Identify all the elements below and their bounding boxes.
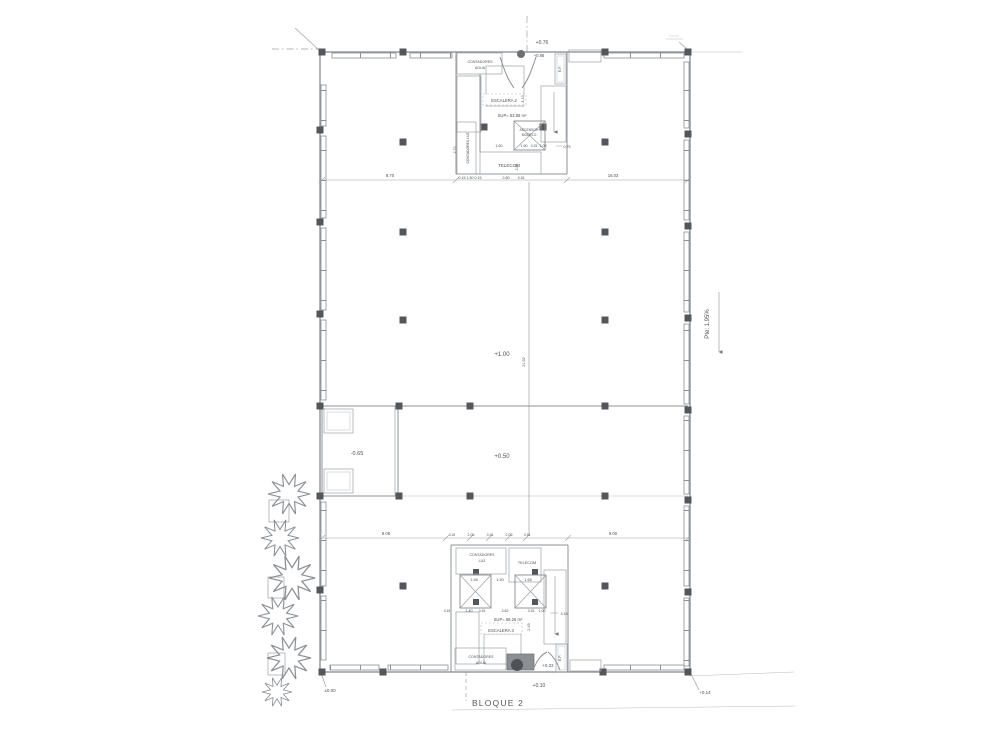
- entry-funnel-top: [500, 57, 536, 88]
- dim-015: 0.15: [531, 144, 538, 148]
- dim-343: 3.43: [521, 95, 525, 102]
- escalera3-label: ESCALERA 3: [488, 628, 514, 633]
- sup-top-label: SUP= 53.88 m²: [498, 113, 527, 118]
- level-top-entry: +0.88: [534, 53, 545, 58]
- dim-245: 2.45: [527, 623, 531, 630]
- site-reference-lines: [272, 16, 795, 710]
- contadores-luz-bottom-1: CONTADORES: [469, 553, 495, 557]
- dim-b5: 0.15: [524, 533, 531, 537]
- dim-2152: 21.52: [522, 357, 526, 367]
- dim-row2a: 0.15 1.50 0.15: [459, 176, 482, 180]
- tree: [261, 520, 299, 556]
- bottom-right-extension-line: [690, 672, 794, 676]
- tree: [267, 637, 311, 679]
- tree: [262, 678, 292, 707]
- telecom-bottom: TELECOM: [518, 561, 536, 565]
- entry-column-top: [517, 50, 525, 58]
- ascensor-2: MODELO: [522, 133, 537, 137]
- building-outline: [320, 52, 690, 672]
- floor-plan-drawing: +0.76 +0.88 E.P. CONTADORES AGUA ESCALER…: [0, 0, 1008, 736]
- dim-c6: 1.00: [539, 609, 546, 613]
- level-top: +0.76: [536, 40, 549, 46]
- dim-c5: 0.15: [528, 609, 535, 613]
- level-bottom-lobby: +0.22: [542, 663, 554, 668]
- dim-075: 0.75: [564, 145, 571, 149]
- vent-hatch-bottom: [570, 660, 601, 671]
- ep-label-top: E.P.: [558, 66, 562, 72]
- columns: [317, 49, 692, 676]
- dim-c7: 3.15: [561, 612, 568, 616]
- ascensor-1: ASCENSOR: [519, 128, 539, 132]
- dim-190: 1.90: [521, 144, 528, 148]
- escalera2-label: ESCALERA 2: [491, 98, 517, 103]
- contadores-luz-bottom-2: LUZ: [479, 559, 487, 563]
- dim-c4: 3.62: [502, 609, 509, 613]
- contadores-agua-bottom-1: CONTADORES: [468, 655, 494, 659]
- stair-flight-left-top: [457, 76, 481, 132]
- dim-b2: 2.05: [468, 533, 475, 537]
- dim-870: 8.70: [386, 173, 395, 178]
- block-title: BLOQUE 2: [472, 698, 524, 708]
- slope-label: Pte: 1.95%: [705, 309, 711, 339]
- contadores-agua-top-1: CONTADORES: [467, 60, 493, 64]
- dim-165b: 1.65: [524, 578, 531, 582]
- dim-280: 2.80: [503, 176, 510, 180]
- corner-level-leader: [691, 674, 699, 690]
- dim-c2: 1.40: [466, 609, 473, 613]
- tree: [269, 556, 315, 600]
- corner-diagonal-line: [295, 28, 319, 50]
- top-right-illegible-mark: [666, 36, 683, 39]
- interior-lines: [322, 182, 688, 536]
- dim-b1: 0.15: [449, 533, 456, 537]
- level-pit: -0.65: [351, 451, 364, 457]
- dim-100: 1.00: [540, 144, 547, 148]
- ep-label-bottom: E.P.: [558, 655, 562, 661]
- dim-160: 1.60: [496, 144, 503, 148]
- dimension-lines: [319, 177, 691, 541]
- dim-220: 2.20: [515, 164, 519, 171]
- dim-273: 2.73: [453, 147, 457, 154]
- contadores-luz-top: CONTADORES LUZ: [466, 132, 470, 163]
- contadores-agua-bottom-2: AGUA: [476, 661, 487, 665]
- dim-808: 8.08: [382, 531, 391, 536]
- scanned-floor-plan-page: +0.76 +0.88 E.P. CONTADORES AGUA ESCALER…: [0, 0, 1008, 736]
- dim-150: 1.50: [496, 578, 503, 582]
- telecom-room-bottom: [509, 548, 541, 582]
- dim-b4: 2.05: [506, 533, 513, 537]
- dim-c1: 0.15: [444, 609, 451, 613]
- dim-c3: 0.15: [479, 609, 486, 613]
- level-bottom-entry: +0.10: [533, 683, 546, 689]
- dim-900: 9.00: [609, 531, 618, 536]
- sup-bottom-label: SUP= 58.26 m²: [494, 617, 523, 622]
- level-ground: ±0.00: [324, 688, 336, 693]
- trees: [258, 474, 315, 706]
- water-meters-room-bottom: [455, 648, 506, 670]
- dim-row2c: 0.15: [518, 176, 525, 180]
- level-upper-hall: +1.00: [494, 352, 510, 358]
- manhole-bottom: [511, 659, 523, 671]
- dim-1603: 16.03: [608, 173, 619, 178]
- dim-b3: 0.15: [487, 533, 494, 537]
- level-corner: +0.14: [699, 690, 711, 695]
- dim-165a: 1.65: [470, 578, 477, 582]
- tree: [258, 597, 298, 635]
- level-lower-hall: +0.50: [494, 454, 510, 460]
- contadores-agua-top-2: AGUA: [475, 66, 486, 70]
